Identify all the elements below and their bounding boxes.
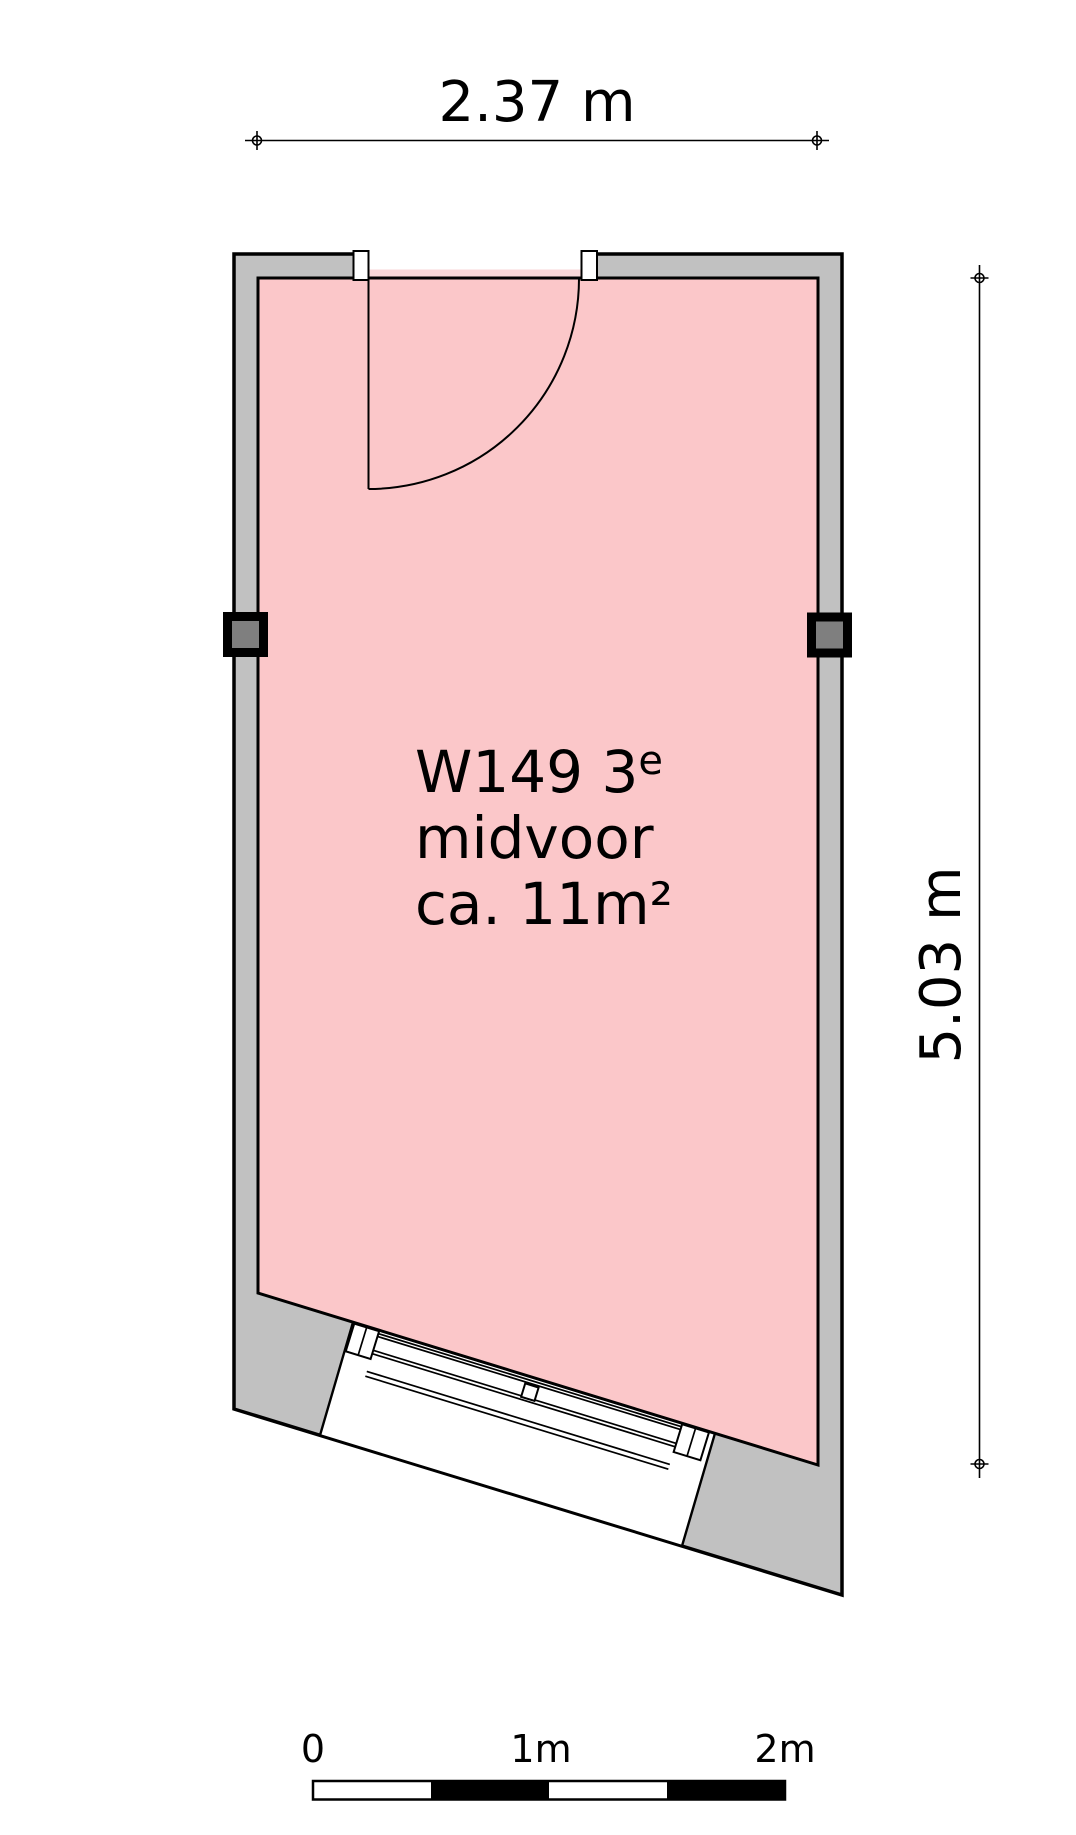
- height-dimension-label: 5.03 m: [909, 866, 974, 1063]
- room-name-line2: midvoor: [415, 804, 654, 872]
- room-floor-superscript: e: [638, 738, 663, 784]
- column-left: [228, 617, 264, 653]
- floorplan-canvas: 2.37 m 5.03 m W149 3e midvoor ca. 11m² 0…: [0, 0, 1076, 1835]
- width-dimension-label: 2.37 m: [438, 70, 635, 135]
- scale-tick-1m: 1m: [510, 1727, 571, 1771]
- door-threshold: [369, 270, 582, 277]
- room-code: W149 3: [415, 738, 638, 806]
- door-opening: [369, 251, 582, 270]
- door-jamb-right: [582, 251, 598, 280]
- width-dimension: 2.37 m: [245, 70, 829, 150]
- room-name-line1: W149 3e: [415, 738, 663, 806]
- door-jamb-left: [354, 251, 369, 280]
- column-right: [812, 617, 848, 653]
- scale-tick-2m: 2m: [754, 1727, 815, 1771]
- scale-tick-0: 0: [301, 1727, 325, 1771]
- window-handle: [521, 1383, 538, 1400]
- room-area-label: ca. 11m²: [415, 870, 673, 938]
- height-dimension: 5.03 m: [909, 265, 989, 1478]
- room-label: W149 3e midvoor ca. 11m²: [415, 738, 673, 938]
- scale-bar-segment: [667, 1781, 785, 1800]
- scale-bar-segment: [431, 1781, 549, 1800]
- floorplan-page: 2.37 m 5.03 m W149 3e midvoor ca. 11m² 0…: [0, 0, 1076, 1835]
- scale-bar: 0 1m 2m: [301, 1727, 816, 1800]
